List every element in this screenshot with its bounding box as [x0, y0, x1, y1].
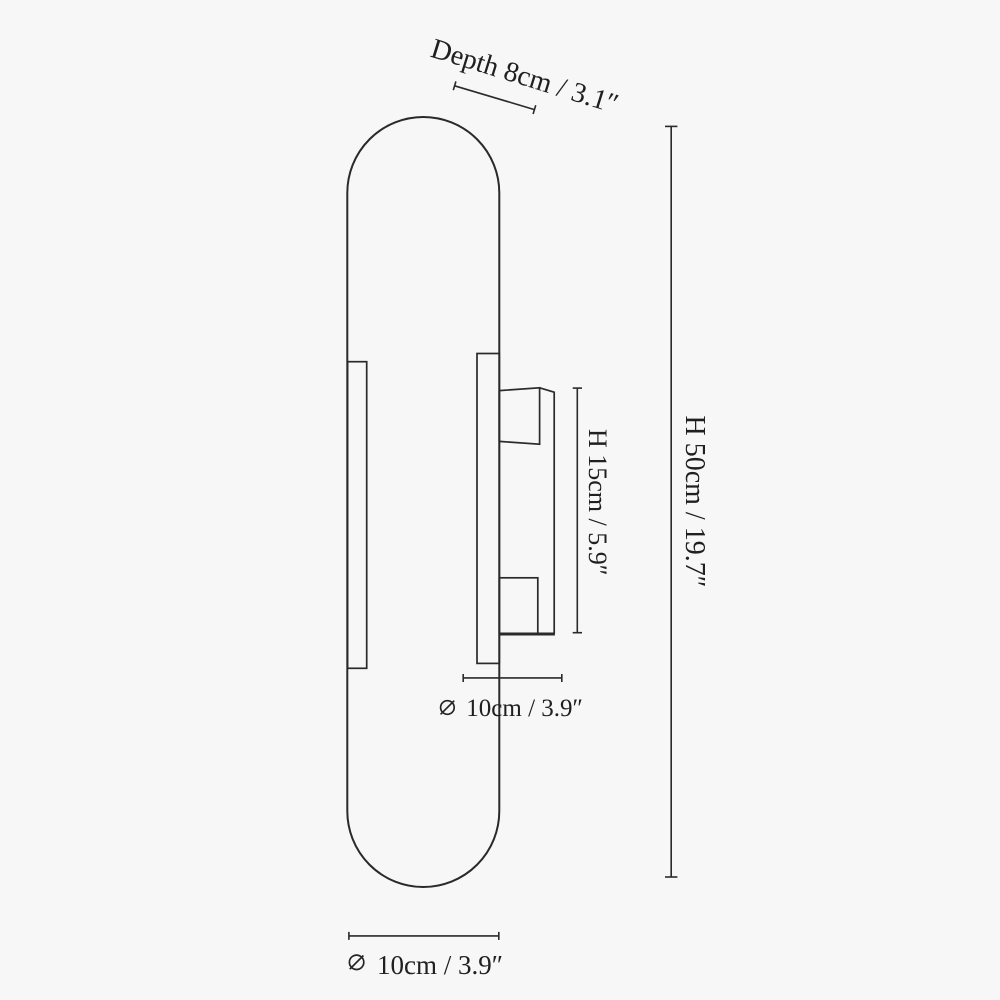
svg-text:H 15cm / 5.9″: H 15cm / 5.9″ [583, 429, 612, 576]
svg-text:10cm / 3.9″: 10cm / 3.9″ [466, 695, 583, 722]
svg-text:10cm / 3.9″: 10cm / 3.9″ [377, 950, 503, 980]
svg-text:H 50cm / 19.7″: H 50cm / 19.7″ [679, 416, 710, 588]
